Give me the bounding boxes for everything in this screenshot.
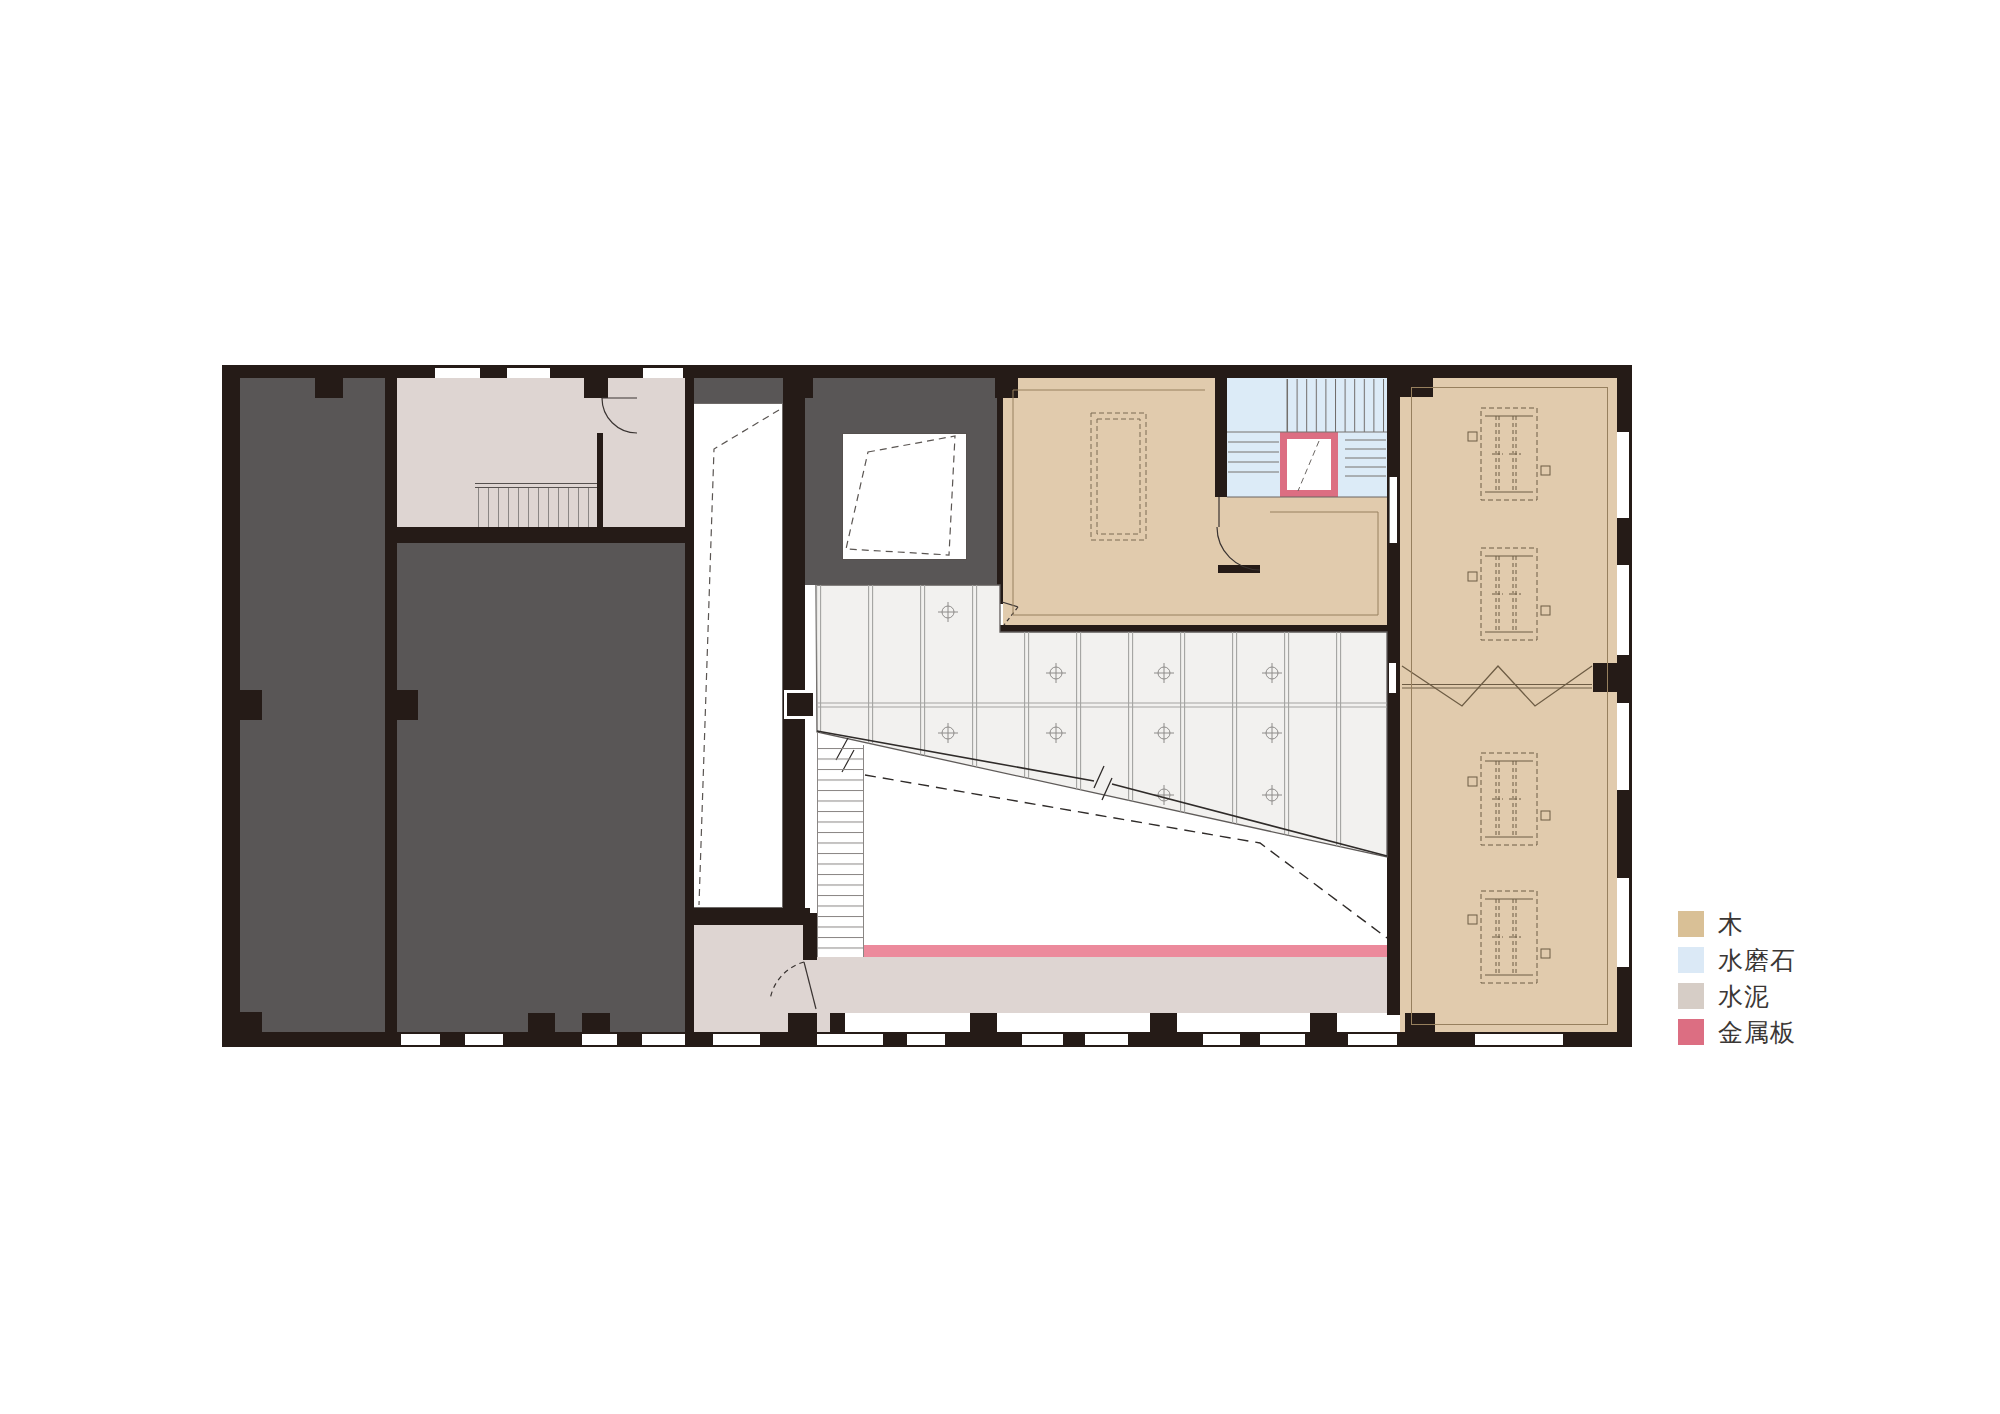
legend-item-cement: 水泥: [1678, 983, 1796, 1009]
legend-swatch-wood: [1678, 911, 1704, 937]
legend-item-metal: 金属板: [1678, 1019, 1796, 1045]
legend-label-metal: 金属板: [1718, 1016, 1796, 1049]
plan-linework: [0, 0, 2000, 1414]
legend-label-terrazzo: 水磨石: [1718, 944, 1796, 977]
legend-swatch-cement: [1678, 983, 1704, 1009]
legend-swatch-metal: [1678, 1019, 1704, 1045]
stair-core: [1227, 379, 1387, 497]
legend-item-terrazzo: 水磨石: [1678, 947, 1796, 973]
legend-label-cement: 水泥: [1718, 980, 1770, 1013]
legend-item-wood: 木: [1678, 911, 1796, 937]
legend-swatch-terrazzo: [1678, 947, 1704, 973]
floor-plan-canvas: 木 水磨石 水泥 金属板: [0, 0, 2000, 1414]
legend-label-wood: 木: [1718, 908, 1744, 941]
material-legend: 木 水磨石 水泥 金属板: [1678, 911, 1796, 1045]
folding-partition: [1402, 666, 1592, 706]
main-stair: [818, 732, 864, 957]
cement-room-stair: [475, 484, 597, 528]
